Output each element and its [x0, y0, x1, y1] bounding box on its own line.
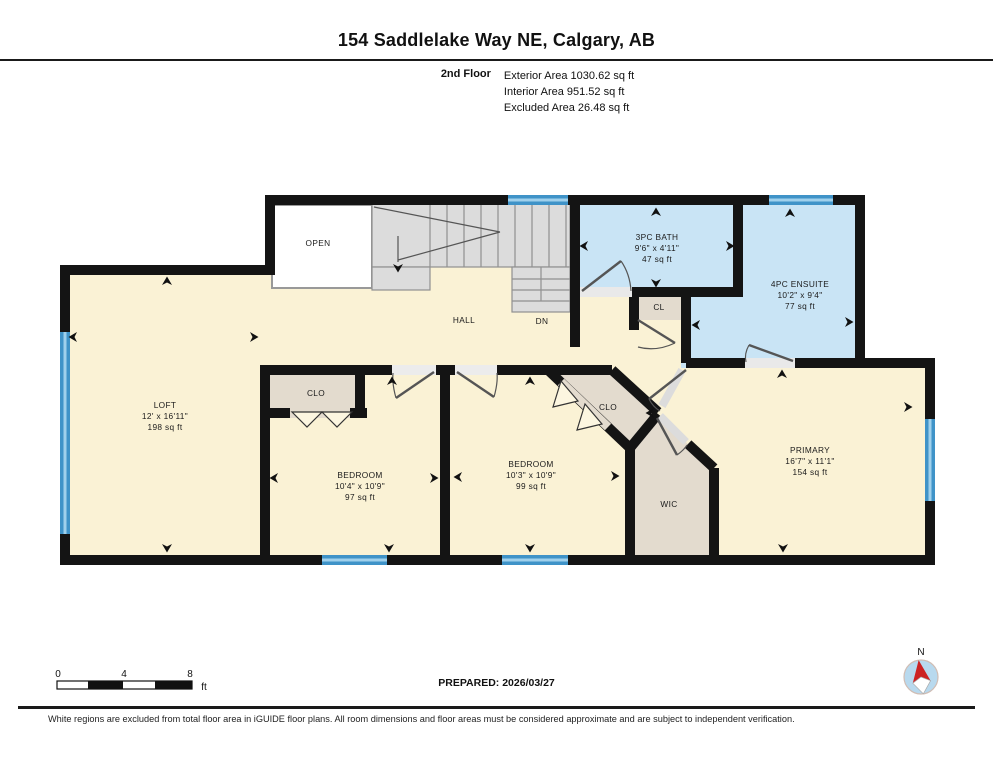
hall-label: HALL: [453, 315, 475, 325]
svg-text:198 sq ft: 198 sq ft: [148, 422, 183, 432]
window: [508, 195, 568, 205]
svg-text:4PC ENSUITE: 4PC ENSUITE: [771, 279, 829, 289]
prepared-date: PREPARED: 2026/03/27: [0, 677, 993, 689]
svg-text:PRIMARY: PRIMARY: [790, 445, 830, 455]
window: [502, 555, 568, 565]
cl-label: CL: [653, 302, 664, 312]
svg-text:154 sq ft: 154 sq ft: [793, 467, 828, 477]
footer-divider: [18, 706, 975, 709]
clo-middle-label: CLO: [599, 402, 617, 412]
window: [60, 332, 70, 534]
svg-text:3PC BATH: 3PC BATH: [636, 232, 679, 242]
window: [769, 195, 833, 205]
svg-text:LOFT: LOFT: [154, 400, 177, 410]
wic-label: WIC: [660, 499, 677, 509]
primary-label: PRIMARY 16'7" x 11'1" 154 sq ft: [785, 445, 834, 477]
svg-text:12' x 16'11": 12' x 16'11": [142, 411, 188, 421]
svg-text:16'7" x 11'1": 16'7" x 11'1": [785, 456, 834, 466]
svg-text:99 sq ft: 99 sq ft: [516, 481, 546, 491]
dn-label: DN: [536, 316, 549, 326]
svg-text:BEDROOM: BEDROOM: [337, 470, 382, 480]
disclaimer-text: White regions are excluded from total fl…: [48, 714, 968, 724]
svg-text:10'4" x 10'9": 10'4" x 10'9": [335, 481, 385, 491]
compass-north-label: N: [917, 647, 924, 658]
window: [322, 555, 387, 565]
svg-text:97 sq ft: 97 sq ft: [345, 492, 375, 502]
svg-text:47 sq ft: 47 sq ft: [642, 254, 672, 264]
svg-text:10'3" x 10'9": 10'3" x 10'9": [506, 470, 556, 480]
svg-text:77 sq ft: 77 sq ft: [785, 301, 815, 311]
clo-left-label: CLO: [307, 388, 325, 398]
svg-text:10'2" x 9'4": 10'2" x 9'4": [777, 290, 822, 300]
svg-text:9'6" x 4'11": 9'6" x 4'11": [635, 243, 679, 253]
open-label: OPEN: [306, 238, 331, 248]
svg-text:BEDROOM: BEDROOM: [508, 459, 553, 469]
floor-plan: LOFT 12' x 16'11" 198 sq ft BEDROOM 10'4…: [0, 0, 993, 768]
window: [925, 419, 935, 501]
